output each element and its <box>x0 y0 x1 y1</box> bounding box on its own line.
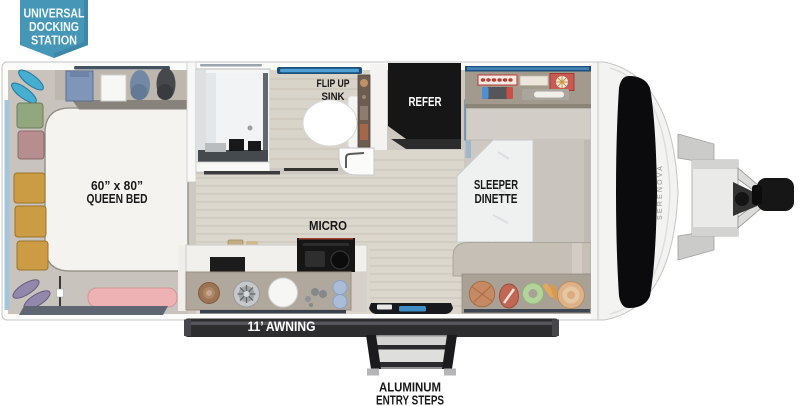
svg-text:ALUMINUM: ALUMINUM <box>379 381 441 395</box>
svg-text:DINETTE: DINETTE <box>475 191 518 206</box>
svg-text:SLEEPER: SLEEPER <box>474 177 518 192</box>
svg-text:FLIP UP: FLIP UP <box>317 78 350 90</box>
svg-text:11’ AWNING: 11’ AWNING <box>248 319 316 334</box>
svg-text:ENTRY STEPS: ENTRY STEPS <box>376 394 444 406</box>
svg-text:SERENOVA: SERENOVA <box>657 164 664 220</box>
svg-text:REFER: REFER <box>409 94 442 109</box>
svg-text:STATION: STATION <box>31 33 77 48</box>
svg-text:MICRO: MICRO <box>309 218 347 233</box>
svg-text:QUEEN BED: QUEEN BED <box>87 191 148 206</box>
